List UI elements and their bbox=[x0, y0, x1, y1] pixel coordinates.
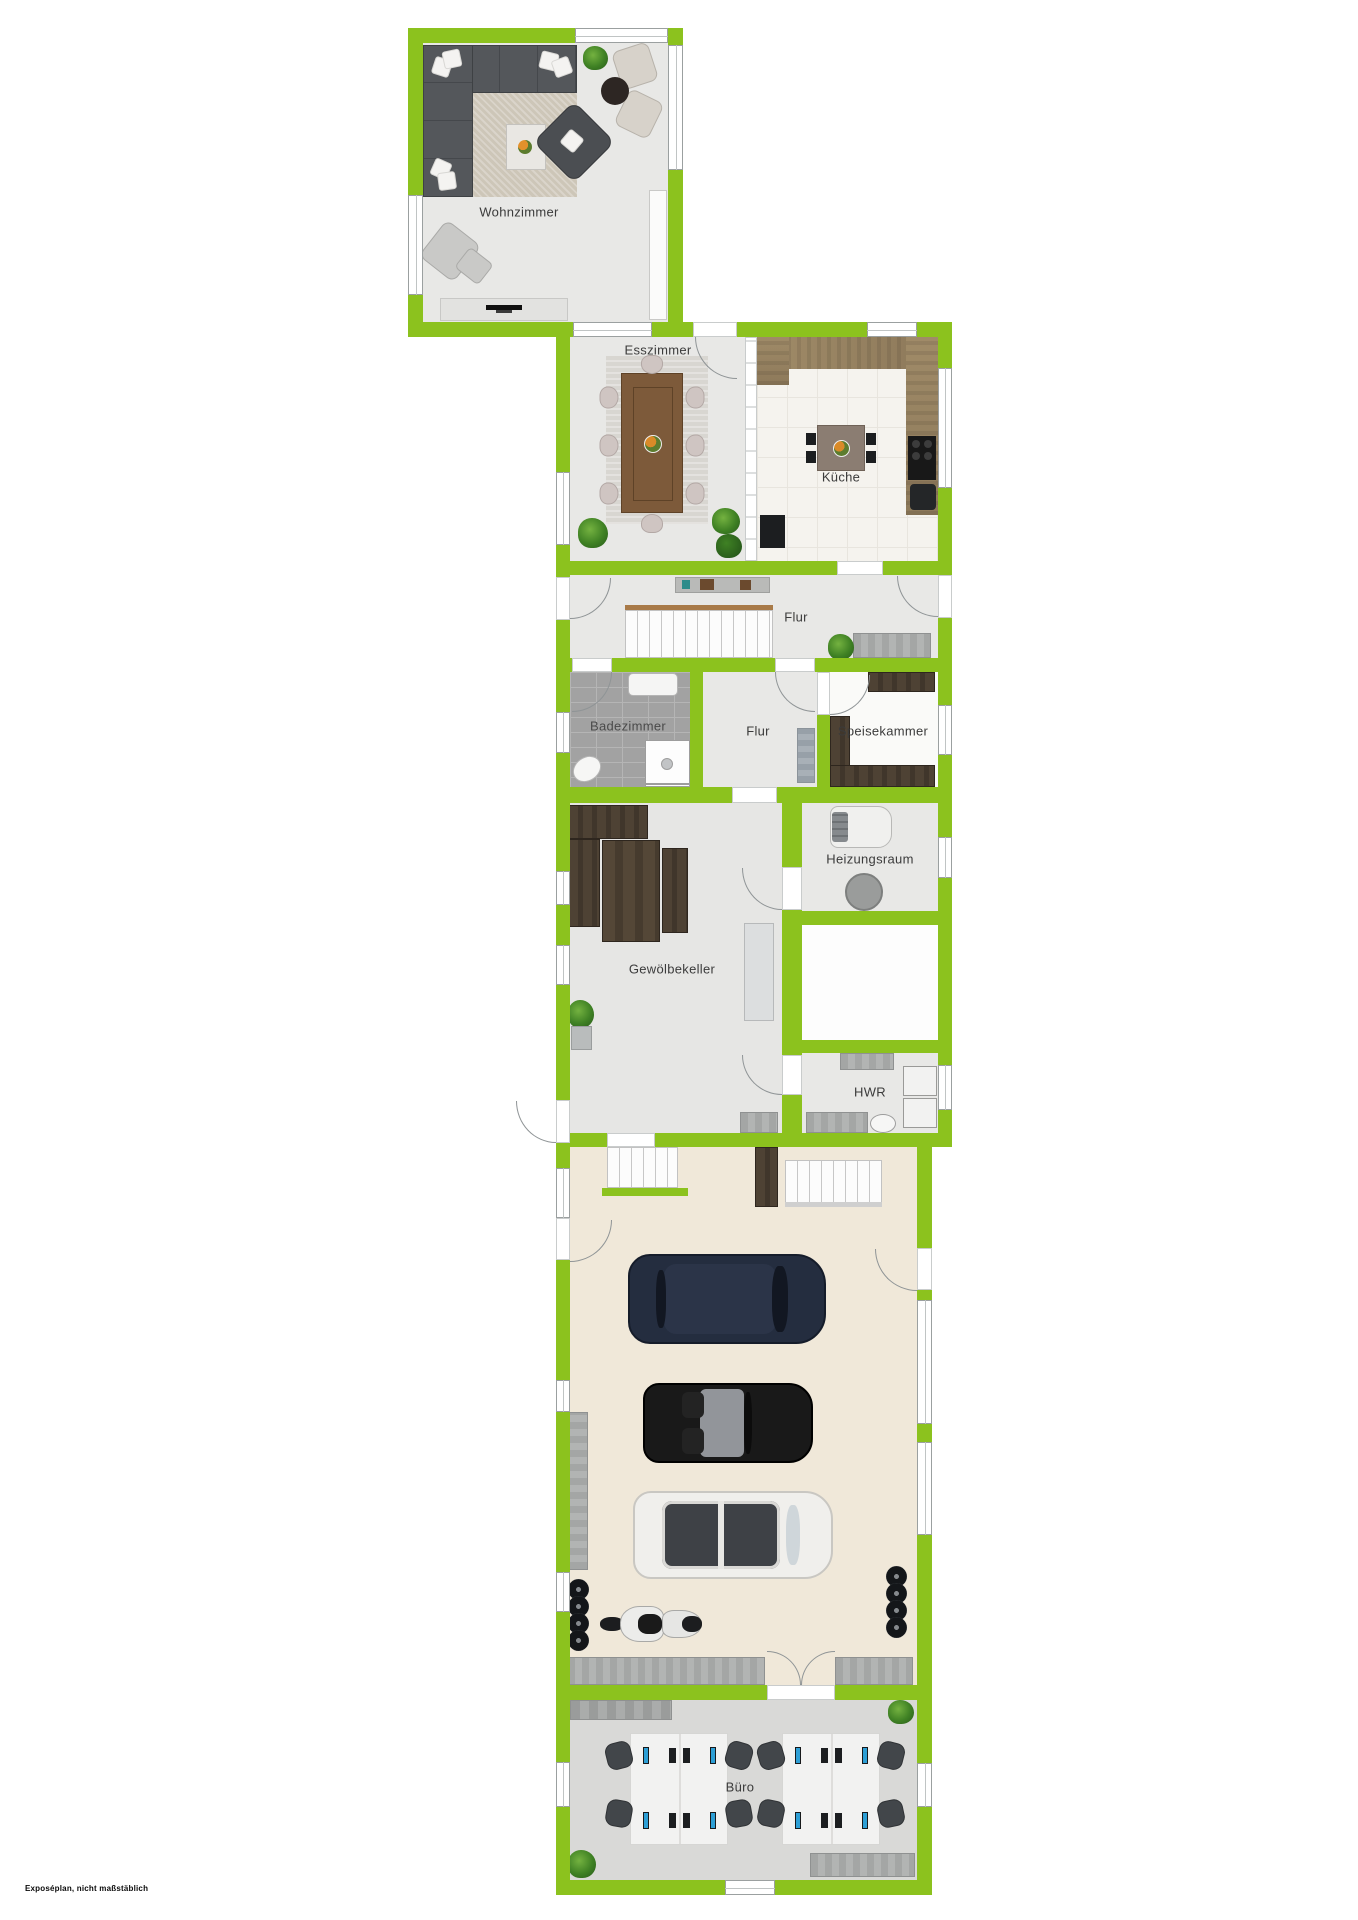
wall-segment bbox=[556, 1260, 570, 1380]
cellar-table bbox=[602, 840, 660, 942]
wall-segment bbox=[777, 787, 952, 803]
kitchen-chair bbox=[866, 433, 876, 445]
dining-chair bbox=[686, 387, 705, 409]
wall-segment bbox=[917, 1133, 932, 1248]
room-label-gewoelbekeller: Gewölbekeller bbox=[629, 962, 715, 977]
garage-staircase-left bbox=[607, 1147, 678, 1188]
staircase-up bbox=[625, 610, 773, 658]
monitor bbox=[710, 1812, 716, 1829]
wall-cabinet bbox=[649, 190, 667, 320]
wall-segment bbox=[556, 985, 570, 1100]
garage-workbench-left bbox=[567, 1412, 588, 1570]
stove-burner bbox=[912, 452, 920, 460]
car-suv-navy-roof bbox=[664, 1264, 776, 1334]
stair-edge bbox=[785, 1202, 882, 1207]
potted-plant bbox=[716, 534, 742, 558]
room-label-esszimmer: Esszimmer bbox=[625, 343, 692, 358]
car-roadster-seat bbox=[682, 1428, 704, 1454]
window bbox=[573, 322, 652, 337]
wall-segment bbox=[917, 1290, 932, 1300]
dining-chair bbox=[600, 483, 619, 505]
window bbox=[725, 1880, 775, 1895]
round-side-table bbox=[601, 77, 629, 105]
window bbox=[575, 28, 668, 43]
stove-burner bbox=[912, 440, 920, 448]
door-leaf bbox=[817, 672, 830, 715]
potted-plant bbox=[712, 508, 740, 534]
cellar-sideboard bbox=[740, 1112, 778, 1133]
wall-segment bbox=[612, 658, 775, 672]
potted-plant bbox=[568, 1850, 596, 1878]
door-leaf bbox=[938, 575, 952, 618]
pantry-shelf-bottom bbox=[830, 765, 935, 787]
window bbox=[867, 322, 917, 337]
window bbox=[938, 705, 952, 755]
kitchen-sink bbox=[910, 484, 936, 510]
wall-segment bbox=[815, 658, 952, 672]
desk-equipment bbox=[669, 1748, 676, 1763]
wall-segment bbox=[556, 905, 570, 945]
desk-cluster bbox=[782, 1733, 880, 1845]
wall-segment bbox=[775, 1880, 932, 1895]
desk-divider bbox=[679, 1734, 681, 1844]
wall-segment bbox=[668, 170, 683, 337]
pantry-shelf-top bbox=[868, 672, 935, 692]
potted-plant bbox=[828, 634, 854, 660]
wall-segment bbox=[556, 561, 837, 575]
window bbox=[917, 1763, 932, 1807]
dryer bbox=[903, 1098, 937, 1128]
wall-segment bbox=[556, 658, 572, 672]
door-opening bbox=[837, 561, 883, 575]
window bbox=[556, 712, 570, 753]
room-label-hwr: HWR bbox=[854, 1085, 886, 1100]
wall-segment bbox=[938, 878, 952, 1065]
fruit-bowl bbox=[518, 140, 532, 154]
shower-drain bbox=[661, 758, 673, 770]
wall-segment bbox=[835, 1685, 932, 1700]
floor-plan: Wohnzimmer Esszimmer Küche Flur Badezimm… bbox=[0, 0, 1358, 1920]
car-suv-white-windshield bbox=[786, 1505, 800, 1565]
wall-segment bbox=[782, 911, 952, 925]
room-label-speisekammer: Speisekammer bbox=[838, 724, 928, 739]
wall-segment bbox=[883, 561, 952, 575]
monitor bbox=[710, 1747, 716, 1764]
window bbox=[668, 45, 683, 170]
car-roadster-windshield bbox=[744, 1392, 752, 1454]
desk-equipment bbox=[683, 1748, 690, 1763]
desk-equipment bbox=[835, 1813, 842, 1828]
dining-chair bbox=[641, 514, 663, 533]
wall-segment bbox=[556, 322, 570, 472]
wall-segment bbox=[408, 28, 575, 43]
potted-plant bbox=[568, 1000, 594, 1028]
desk-equipment bbox=[683, 1813, 690, 1828]
wall-segment bbox=[737, 322, 867, 337]
door-leaf bbox=[782, 867, 802, 910]
monitor bbox=[643, 1747, 649, 1764]
window bbox=[556, 871, 570, 905]
desk-equipment bbox=[821, 1813, 828, 1828]
void-space-floor bbox=[802, 925, 938, 1040]
stove-burner bbox=[924, 440, 932, 448]
potted-plant bbox=[583, 46, 608, 70]
dining-chair bbox=[600, 435, 619, 457]
desk-equipment bbox=[821, 1748, 828, 1763]
washing-machine bbox=[903, 1066, 937, 1096]
car-roadster-cockpit bbox=[700, 1389, 744, 1457]
cellar-corner-bench bbox=[568, 805, 648, 839]
boiler-panel bbox=[832, 812, 848, 842]
desk-equipment bbox=[835, 1748, 842, 1763]
wall-segment bbox=[556, 1412, 570, 1572]
room-label-heizungsraum: Heizungsraum bbox=[826, 852, 913, 867]
garage-workbench-bottom-right bbox=[835, 1657, 913, 1685]
dining-chair bbox=[686, 435, 705, 457]
dining-chair bbox=[600, 387, 619, 409]
hall-runner-rug bbox=[797, 728, 815, 783]
window bbox=[556, 1572, 570, 1612]
monitor bbox=[795, 1747, 801, 1764]
office-sideboard-bottom bbox=[810, 1853, 915, 1877]
cellar-bench bbox=[662, 848, 688, 933]
monitor bbox=[795, 1812, 801, 1829]
potted-plant bbox=[888, 1700, 914, 1724]
dining-chair bbox=[641, 355, 663, 374]
cellar-corner-bench-side bbox=[568, 839, 600, 927]
tire bbox=[568, 1630, 589, 1651]
door-leaf bbox=[556, 1100, 570, 1143]
bathtub bbox=[628, 673, 678, 696]
fruit-bowl bbox=[644, 435, 662, 453]
wall-segment bbox=[917, 1535, 932, 1763]
wall-segment bbox=[917, 1424, 932, 1442]
utility-counter-top bbox=[840, 1053, 894, 1070]
wall-segment bbox=[556, 753, 570, 871]
kitchen-chair bbox=[806, 433, 816, 445]
wall-segment bbox=[556, 787, 732, 803]
kitchen-chair bbox=[806, 451, 816, 463]
door-leaf bbox=[572, 658, 612, 672]
double-door-leaf bbox=[767, 1685, 835, 1700]
tire-stack bbox=[568, 1583, 589, 1651]
stair-landing bbox=[755, 1147, 778, 1207]
monitor bbox=[643, 1812, 649, 1829]
room-label-flur-og: Flur bbox=[784, 610, 808, 625]
desk-divider bbox=[831, 1734, 833, 1844]
window bbox=[556, 945, 570, 985]
cellar-shelf bbox=[744, 923, 774, 1021]
door-opening bbox=[732, 787, 777, 803]
door-leaf bbox=[556, 577, 570, 620]
sideboard-decor bbox=[740, 580, 751, 590]
sofa-pillow bbox=[441, 48, 462, 69]
stove-burner bbox=[924, 452, 932, 460]
window bbox=[917, 1300, 932, 1424]
wall-segment bbox=[556, 1880, 725, 1895]
motorcycle bbox=[600, 1598, 705, 1650]
potted-plant bbox=[578, 518, 608, 548]
wall-segment bbox=[782, 1040, 952, 1053]
garage-workbench-bottom-left bbox=[567, 1657, 765, 1685]
room-divider-opening bbox=[745, 337, 757, 561]
fruit-bowl bbox=[833, 440, 850, 457]
sofa-pillow bbox=[437, 171, 457, 191]
desk-cluster bbox=[630, 1733, 728, 1845]
plan-footnote: Exposéplan, nicht maßstäblich bbox=[25, 1884, 148, 1893]
wall-segment bbox=[652, 322, 693, 337]
wall-segment bbox=[655, 1133, 952, 1147]
door-opening bbox=[607, 1133, 655, 1147]
car-suv-navy-rear-window bbox=[656, 1270, 666, 1328]
kitchen-counter-corner bbox=[757, 337, 789, 385]
sideboard-decor bbox=[682, 580, 690, 589]
garage-staircase-right bbox=[785, 1160, 882, 1205]
desk-equipment bbox=[669, 1813, 676, 1828]
car-roadster-seat bbox=[682, 1392, 704, 1418]
wall-segment bbox=[938, 322, 952, 368]
door-leaf bbox=[782, 1055, 802, 1095]
tire-stack bbox=[886, 1570, 907, 1638]
car-suv-white-roof-divider bbox=[718, 1501, 724, 1569]
kitchen-appliance bbox=[760, 515, 785, 548]
kitchen-chair bbox=[866, 451, 876, 463]
door-swing-arc bbox=[516, 1101, 556, 1143]
window bbox=[556, 472, 570, 545]
room-label-buero: Büro bbox=[726, 1780, 755, 1795]
wall-segment bbox=[690, 672, 703, 787]
room-label-kueche: Küche bbox=[822, 470, 860, 485]
wall-segment bbox=[817, 715, 830, 787]
door-leaf bbox=[556, 1218, 570, 1260]
wall-segment bbox=[782, 910, 802, 1055]
window bbox=[917, 1442, 932, 1535]
utility-counter-bottom bbox=[806, 1112, 868, 1133]
wall-segment bbox=[408, 28, 423, 195]
tire bbox=[886, 1617, 907, 1638]
tv-stand bbox=[496, 310, 512, 313]
window bbox=[556, 1762, 570, 1807]
office-sideboard-top bbox=[570, 1700, 672, 1720]
car-suv-navy-windshield bbox=[772, 1266, 788, 1332]
monitor bbox=[862, 1812, 868, 1829]
monitor bbox=[862, 1747, 868, 1764]
window bbox=[556, 1168, 570, 1218]
shower-glass bbox=[645, 783, 690, 785]
wall-segment bbox=[668, 28, 683, 45]
door-leaf bbox=[693, 322, 737, 337]
motorcycle-rear-wheel bbox=[682, 1616, 702, 1632]
wall-segment bbox=[782, 1095, 802, 1133]
window bbox=[938, 368, 952, 488]
stair-wall bbox=[602, 1188, 688, 1196]
hall-bench bbox=[853, 633, 931, 658]
window bbox=[938, 837, 952, 878]
room-label-wohnzimmer: Wohnzimmer bbox=[479, 205, 558, 220]
window bbox=[408, 195, 423, 295]
plant-pot bbox=[571, 1026, 592, 1050]
sideboard-decor bbox=[700, 579, 714, 590]
room-label-flur-ug: Flur bbox=[746, 724, 770, 739]
wall-segment bbox=[556, 1685, 767, 1700]
wall-segment bbox=[408, 322, 573, 337]
utility-sink bbox=[870, 1114, 896, 1133]
window bbox=[556, 1380, 570, 1412]
door-leaf bbox=[917, 1248, 932, 1290]
room-label-badezimmer: Badezimmer bbox=[590, 719, 666, 734]
dining-chair bbox=[686, 483, 705, 505]
wall-segment bbox=[782, 803, 802, 867]
window bbox=[938, 1065, 952, 1110]
water-tank bbox=[845, 873, 883, 911]
motorcycle-tank bbox=[638, 1614, 662, 1634]
door-leaf bbox=[775, 658, 815, 672]
